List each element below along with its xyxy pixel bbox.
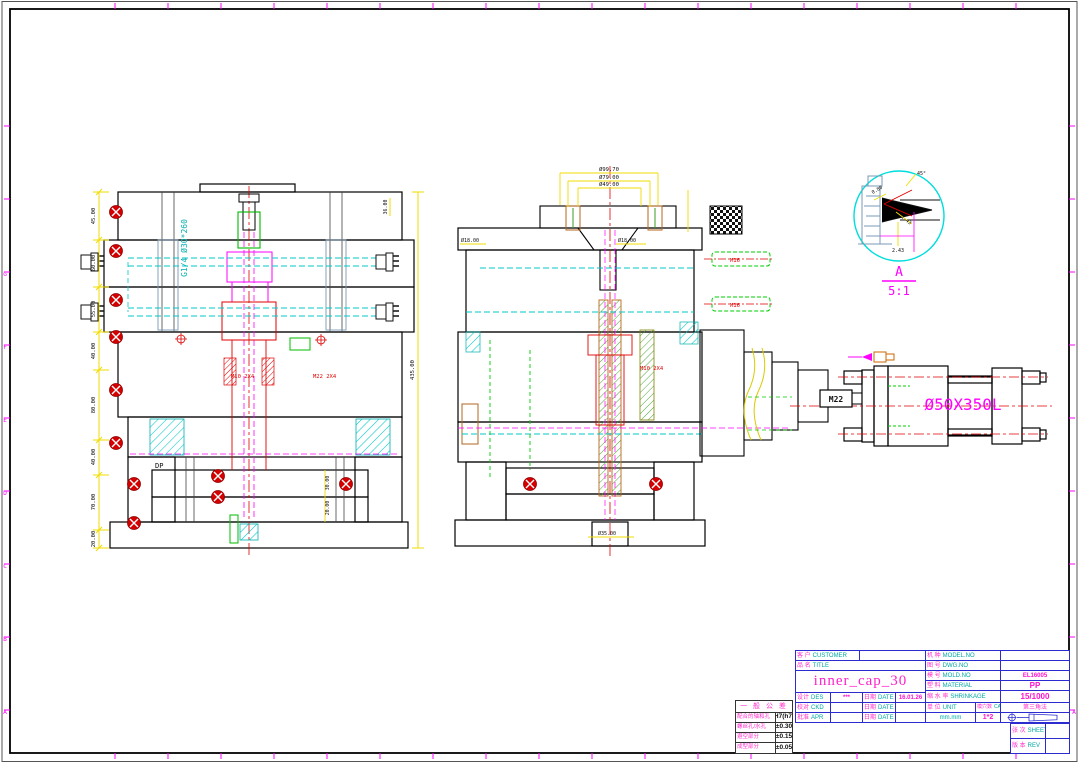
sheet-label: 张 次 SHEET [1010, 723, 1046, 739]
zone-letter: E [3, 417, 7, 424]
svg-text:60.00: 60.00 [91, 255, 97, 272]
svg-text:20.00: 20.00 [91, 531, 97, 548]
sheet-value [1045, 723, 1070, 739]
svg-text:80.00: 80.00 [91, 397, 97, 414]
unit-value: mm.mm [925, 712, 976, 723]
locating-ring-block [710, 206, 742, 234]
zone-letter: B [3, 636, 7, 643]
svg-text:Ø35.00: Ø35.00 [598, 530, 616, 537]
svg-text:A: A [895, 265, 903, 280]
red-ball-marker [524, 478, 537, 491]
svg-text:40.00: 40.00 [91, 449, 97, 466]
water-spec-label: G1/4 Ø30*260 [179, 219, 189, 277]
cavity-value: 1*2 [975, 712, 1001, 723]
svg-text:70.00: 70.00 [91, 494, 97, 511]
svg-text:M16: M16 [730, 258, 740, 264]
m10-label-right: M10 2X4 [640, 366, 664, 372]
m10-label: M10 2X4 [231, 374, 255, 380]
zone-letter: F [3, 344, 7, 351]
approve-date-value [895, 712, 926, 723]
tolerance-row-value: ±0.05 [775, 742, 793, 754]
cyan-wear-block [150, 419, 184, 455]
svg-text:M22: M22 [829, 395, 844, 404]
projection-symbol-cell [1000, 712, 1070, 723]
zone-letter: C [3, 563, 7, 570]
svg-text:Ø79.00: Ø79.00 [599, 174, 619, 181]
sheet-border [2, 2, 1077, 762]
svg-text:Ø49.00: Ø49.00 [599, 181, 619, 188]
svg-text:2.43: 2.43 [892, 248, 904, 254]
zone-letter-right: A [1072, 709, 1076, 716]
svg-text:Ø99.70: Ø99.70 [599, 166, 619, 173]
approver-label: 批准 APR [795, 712, 831, 723]
svg-text:55.00: 55.00 [91, 301, 97, 318]
third-angle-projection-icon [1007, 713, 1063, 722]
svg-text:36.00: 36.00 [383, 199, 389, 214]
m22-label: M22 2X4 [313, 374, 337, 380]
svg-text:5:1: 5:1 [888, 284, 910, 298]
svg-text:20.00: 20.00 [325, 501, 331, 516]
svg-text:M16: M16 [730, 303, 740, 309]
tolerance-row-label: 成型部分 [735, 742, 776, 754]
cylinder-size-label: Ø50X350L [924, 395, 1001, 414]
rev-label: 版 本 REV [1010, 738, 1046, 754]
approver-value [830, 712, 863, 723]
approve-date-label: 日期 DATE [862, 712, 896, 723]
rev-value [1045, 738, 1070, 754]
svg-text:40.00: 40.00 [91, 343, 97, 360]
drawing-canvas: G F E D C B A A [0, 0, 1079, 763]
part-name-value: inner_cap_30 [795, 670, 926, 693]
dp-label: DP [155, 462, 163, 470]
drawing-sheet: 由 Autodesk 教育版产品制作 由 Autodesk 教育版产品制作 由 … [0, 0, 1079, 763]
zone-letter: D [3, 490, 7, 497]
svg-text:Ø18.00: Ø18.00 [618, 237, 636, 244]
svg-text:Ø18.00: Ø18.00 [461, 237, 479, 244]
svg-text:30.00: 30.00 [325, 476, 331, 491]
svg-text:45.00: 45.00 [91, 208, 97, 225]
svg-text:45°: 45° [917, 171, 926, 177]
cyan-wear-block [356, 419, 390, 455]
svg-text:435.00: 435.00 [410, 360, 416, 380]
zone-letter: A [3, 709, 7, 716]
red-ball-marker [650, 478, 663, 491]
zone-letter: G [3, 271, 7, 278]
